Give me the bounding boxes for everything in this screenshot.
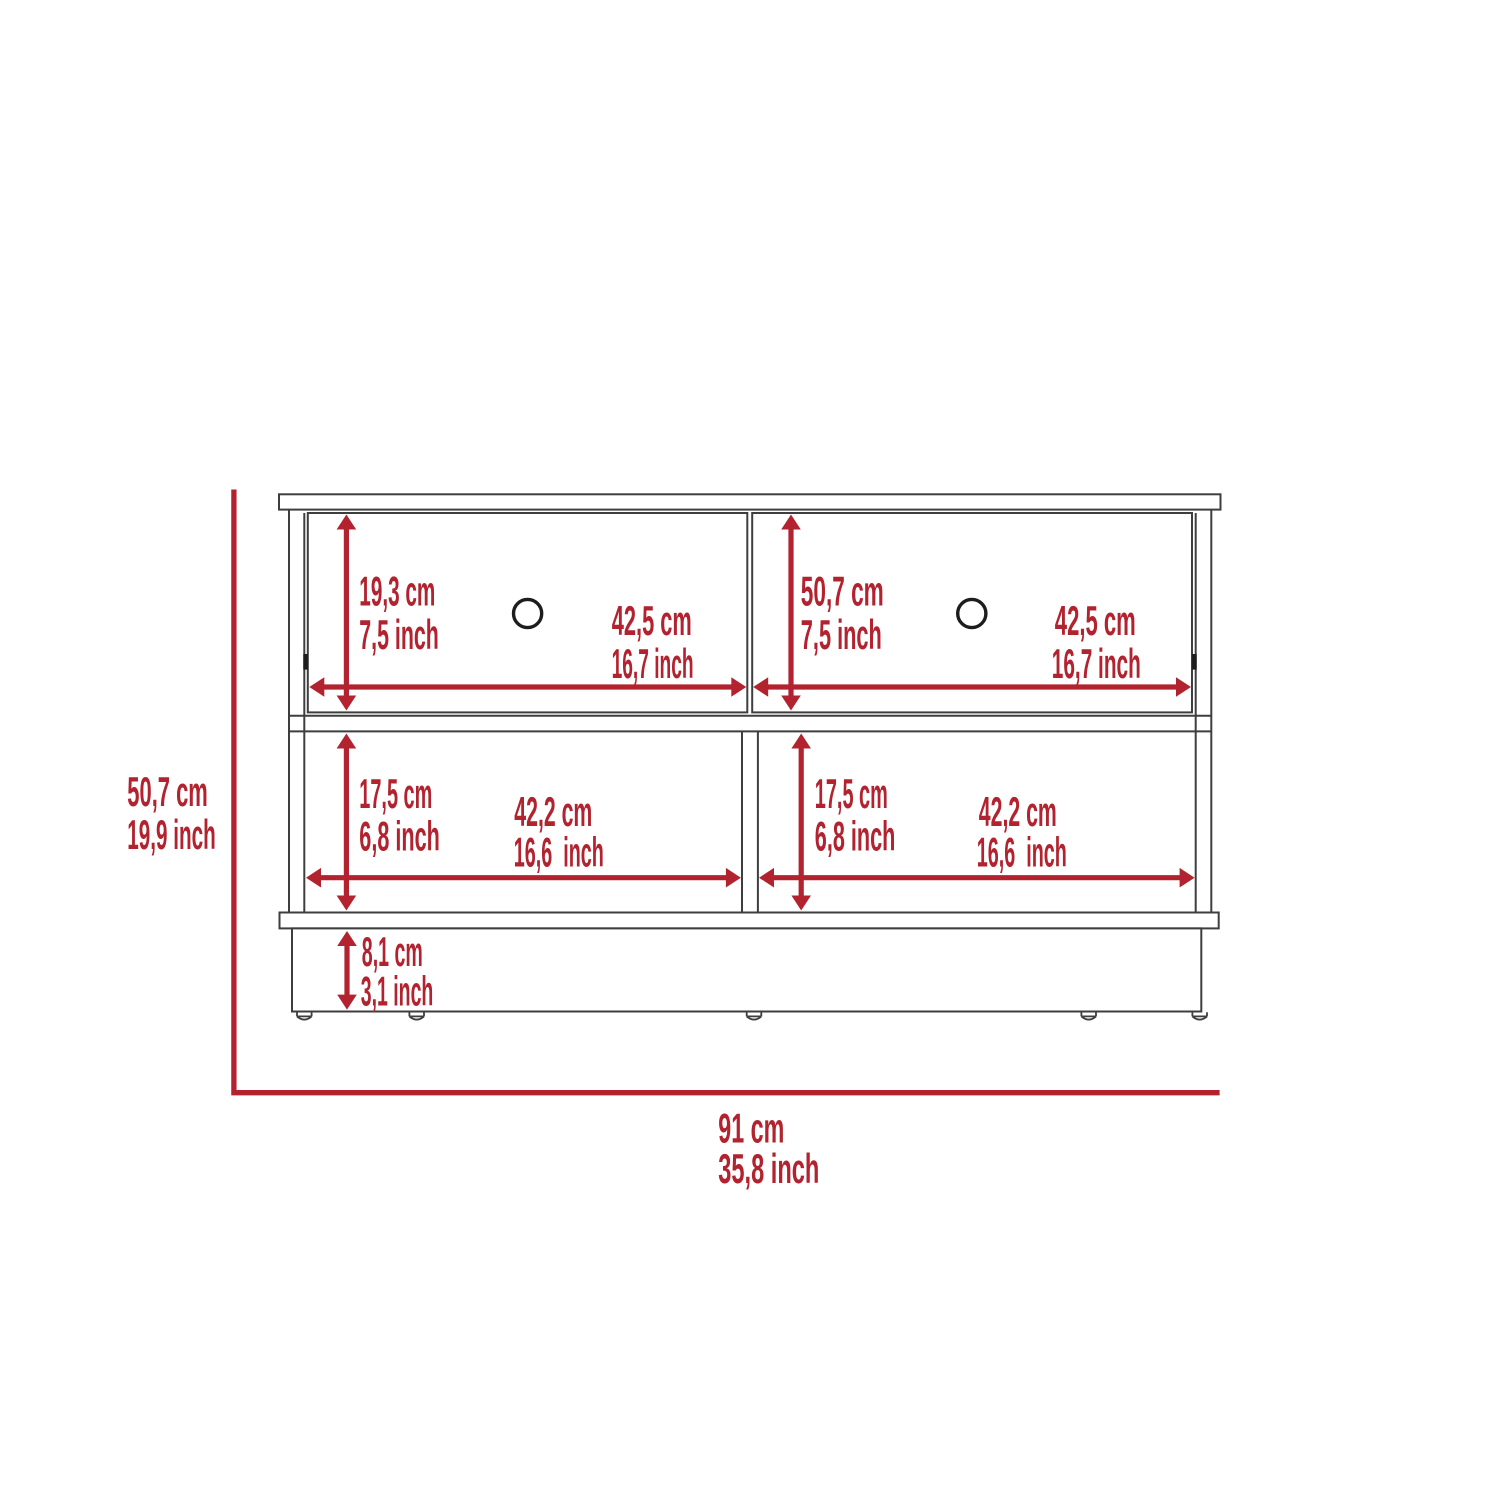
svg-text:16,6 inch: 16,6 inch	[977, 829, 1067, 876]
svg-text:16,7 inch: 16,7 inch	[612, 640, 694, 687]
svg-text:16,7 inch: 16,7 inch	[1052, 640, 1141, 687]
svg-text:35,8 inch: 35,8 inch	[718, 1145, 819, 1192]
svg-text:7,5 inch: 7,5 inch	[359, 611, 439, 658]
svg-text:19,9 inch: 19,9 inch	[127, 811, 216, 858]
svg-text:6,8 inch: 6,8 inch	[359, 813, 440, 860]
svg-text:6,8 inch: 6,8 inch	[815, 813, 896, 860]
svg-text:42,5 cm: 42,5 cm	[1055, 597, 1136, 644]
svg-text:50,7 cm: 50,7 cm	[801, 568, 884, 615]
svg-text:50,7 cm: 50,7 cm	[127, 768, 208, 815]
svg-text:17,5 cm: 17,5 cm	[359, 770, 432, 817]
svg-text:7,5 inch: 7,5 inch	[801, 611, 882, 658]
svg-text:42,5 cm: 42,5 cm	[612, 597, 692, 644]
svg-text:16,6 inch: 16,6 inch	[514, 829, 604, 876]
svg-text:19,3 cm: 19,3 cm	[359, 568, 435, 615]
svg-text:3,1 inch: 3,1 inch	[361, 968, 434, 1015]
svg-text:17,5 cm: 17,5 cm	[815, 770, 888, 817]
